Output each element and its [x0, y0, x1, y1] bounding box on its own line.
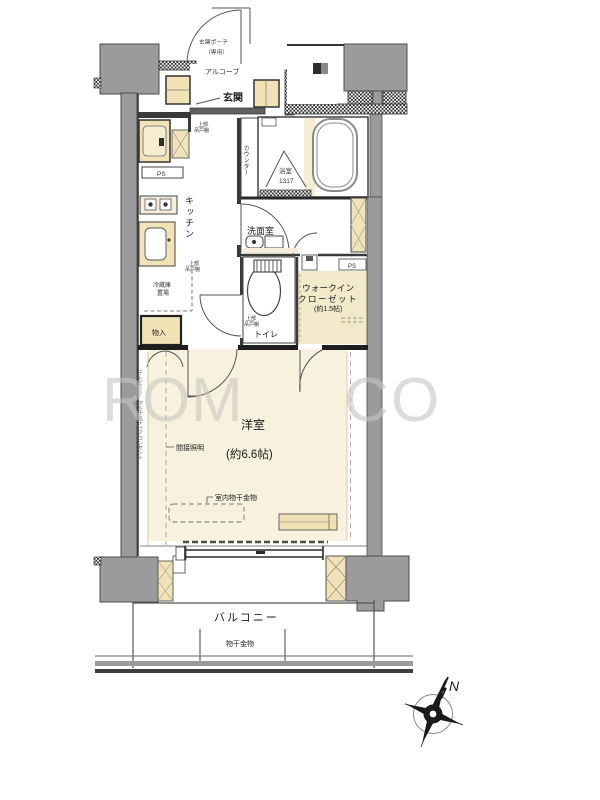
svg-text:キッチン: キッチン [184, 196, 194, 240]
svg-text:物干金物: 物干金物 [226, 639, 254, 648]
svg-text:（専用）: （専用） [205, 48, 228, 56]
svg-text:室内物干金物: 室内物干金物 [215, 493, 257, 502]
svg-text:冷蔵庫: 冷蔵庫 [153, 281, 171, 289]
svg-text:浴室: 浴室 [279, 166, 293, 175]
svg-text:R: R [102, 366, 147, 435]
svg-text:O: O [391, 366, 439, 435]
svg-text:O: O [142, 366, 190, 435]
svg-text:吊戸棚: 吊戸棚 [194, 127, 209, 134]
svg-text:N: N [449, 678, 460, 694]
svg-text:上部: 上部 [189, 260, 199, 267]
svg-text:バルコニー: バルコニー [214, 611, 279, 624]
svg-text:PS: PS [157, 171, 166, 178]
svg-text:玄関: 玄関 [223, 91, 243, 104]
svg-text:(約1.5帖): (約1.5帖) [314, 304, 342, 313]
svg-text:洋室: 洋室 [241, 417, 265, 432]
svg-text:(約6.6帖): (約6.6帖) [226, 447, 273, 461]
svg-text:カウンター: カウンター [242, 145, 249, 175]
svg-text:上部: 上部 [246, 315, 256, 322]
svg-text:吊戸棚: 吊戸棚 [244, 321, 259, 328]
svg-text:間接照明: 間接照明 [176, 443, 204, 452]
svg-text:ウォークイン: ウォークイン [302, 283, 354, 293]
svg-text:吊戸棚: 吊戸棚 [185, 266, 200, 273]
svg-text:上部: 上部 [198, 121, 208, 128]
svg-text:1317: 1317 [279, 178, 294, 185]
svg-text:M: M [191, 366, 243, 435]
svg-text:洗面室: 洗面室 [247, 225, 274, 236]
svg-text:PS: PS [348, 264, 356, 270]
svg-text:物入: 物入 [152, 328, 166, 337]
svg-text:置場: 置場 [157, 289, 169, 297]
svg-text:アルコーブ: アルコーブ [205, 67, 239, 76]
svg-text:トイレ: トイレ [254, 330, 278, 339]
svg-text:C: C [344, 366, 389, 435]
svg-text:クローゼット: クローゼット [298, 294, 358, 304]
svg-text:玄関ポーチ: 玄関ポーチ [199, 38, 228, 46]
